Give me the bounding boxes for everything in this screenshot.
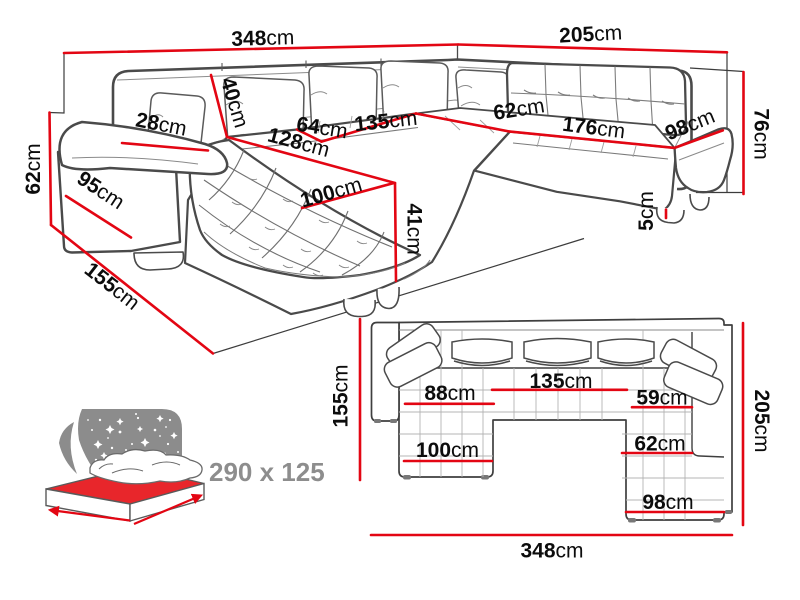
svg-text:5cm: 5cm xyxy=(635,191,658,231)
svg-text:205cm: 205cm xyxy=(559,21,623,47)
svg-text:62cm: 62cm xyxy=(634,433,685,456)
svg-text:205cm: 205cm xyxy=(750,389,773,452)
svg-text:100cm: 100cm xyxy=(416,439,479,462)
svg-text:290 x 125: 290 x 125 xyxy=(209,457,325,487)
svg-text:98cm: 98cm xyxy=(642,491,693,514)
svg-text:62cm: 62cm xyxy=(22,143,45,194)
svg-text:41cm: 41cm xyxy=(403,203,426,254)
svg-text:348cm: 348cm xyxy=(231,26,295,51)
svg-text:59cm: 59cm xyxy=(636,387,687,410)
svg-text:155cm: 155cm xyxy=(80,258,144,315)
svg-text:348cm: 348cm xyxy=(520,540,583,563)
svg-text:135cm: 135cm xyxy=(529,370,592,393)
svg-text:76cm: 76cm xyxy=(750,108,773,159)
svg-text:88cm: 88cm xyxy=(424,382,475,405)
svg-text:155cm: 155cm xyxy=(330,364,353,427)
